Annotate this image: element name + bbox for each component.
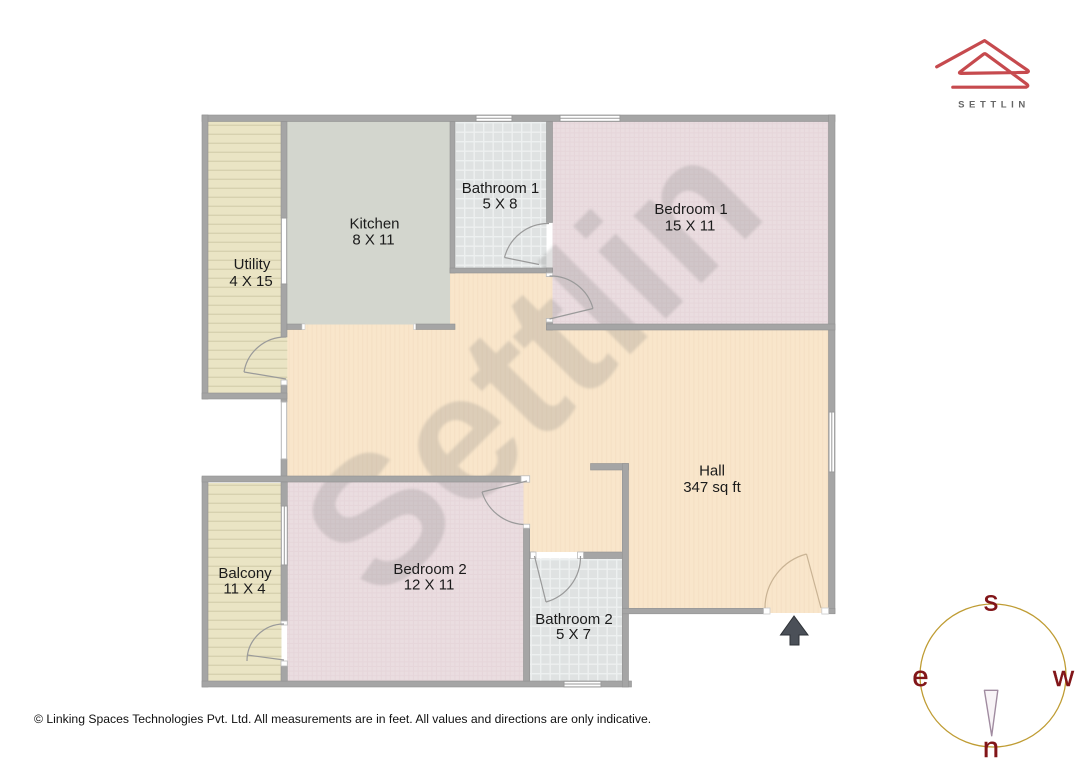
svg-text:Balcony: Balcony	[218, 565, 272, 582]
svg-text:w: w	[1052, 661, 1075, 693]
svg-text:© Linking Spaces Technologies: © Linking Spaces Technologies Pvt. Ltd. …	[34, 712, 651, 726]
svg-text:Hall: Hall	[699, 462, 725, 479]
svg-text:e: e	[912, 661, 928, 693]
svg-text:5 X 8: 5 X 8	[482, 195, 517, 212]
svg-text:12 X 11: 12 X 11	[404, 577, 455, 594]
svg-text:5 X 7: 5 X 7	[556, 626, 591, 643]
svg-text:8 X 11: 8 X 11	[352, 231, 394, 248]
svg-text:s: s	[984, 586, 999, 618]
svg-text:11 X 4: 11 X 4	[223, 580, 265, 597]
svg-text:Bathroom 1: Bathroom 1	[462, 180, 540, 197]
svg-text:347 sq ft: 347 sq ft	[683, 479, 741, 496]
svg-text:Kitchen: Kitchen	[349, 215, 399, 232]
svg-text:15 X 11: 15 X 11	[665, 217, 716, 234]
svg-text:Utility: Utility	[234, 256, 271, 273]
svg-text:Bedroom 1: Bedroom 1	[654, 201, 727, 218]
svg-text:Bedroom 2: Bedroom 2	[393, 561, 466, 578]
svg-text:4 X 15: 4 X 15	[229, 273, 272, 290]
svg-text:SETTLIN: SETTLIN	[958, 100, 1030, 111]
svg-text:n: n	[983, 732, 999, 764]
